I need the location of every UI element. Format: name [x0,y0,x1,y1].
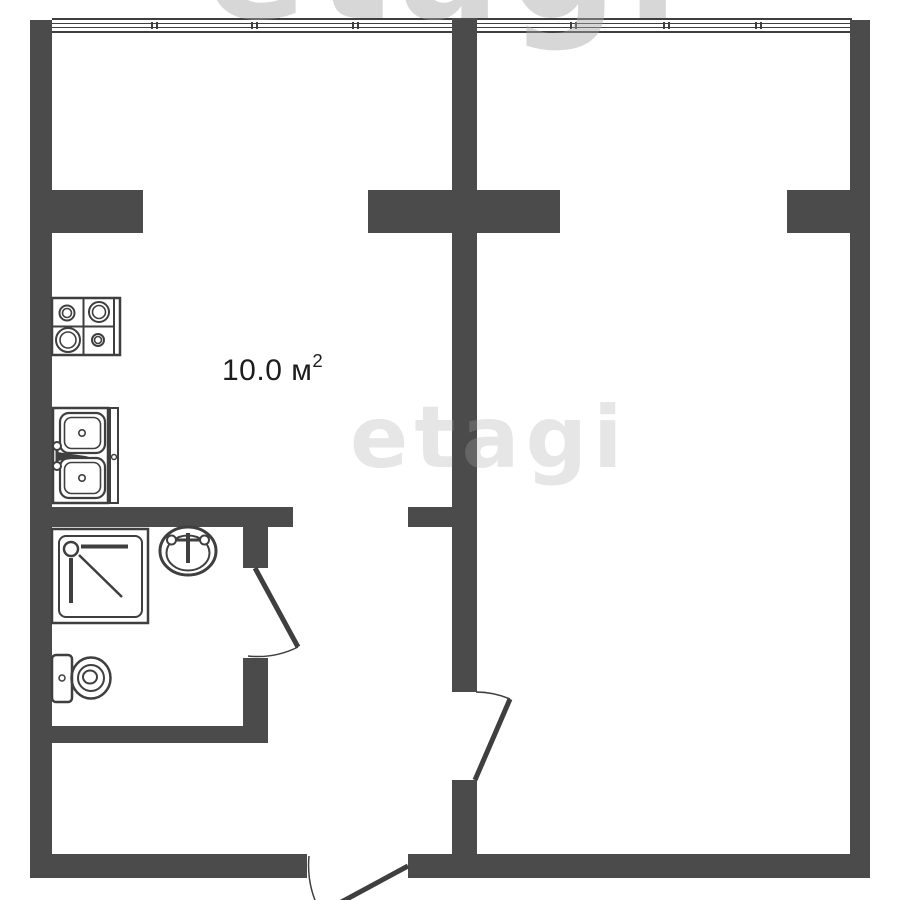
window-mullion [570,22,577,29]
wall-right [850,20,870,878]
window-mullion [251,22,258,29]
kitchen-area-superscript: 2 [312,350,323,371]
partition-stub-right [787,190,852,233]
shower-icon [52,529,148,623]
partition-stub-middle [368,190,560,233]
stove-icon [52,298,120,355]
kitchen-sink-icon [53,408,118,503]
partition-stub-left [52,190,143,233]
entrance-door [309,856,408,900]
bathroom-door [248,568,298,657]
window-mullion [151,22,158,29]
watermark-center: etagi [350,395,629,481]
wall-left [30,20,52,878]
kitchen-area-value: 10.0 м [222,354,312,387]
wall-hall-stub [408,507,452,527]
wall-bottom-left [30,854,307,878]
window-mullion [755,22,762,29]
wall-bottom-right [408,854,870,878]
fixtures-overlay [0,0,900,900]
wall-bath-right-upper [243,527,268,568]
wall-central-lower [452,780,477,878]
toilet-icon [52,655,111,702]
kitchen-area-label: 10.0 м2 [222,352,323,388]
wall-bath-right-lower [243,658,268,728]
room-door [475,692,510,780]
wall-central-upper [452,18,477,692]
wall-kitchen-bath [52,507,293,527]
washbasin-icon [160,527,216,575]
floor-plan: 10.0 м2 etagi etagi [0,0,900,900]
wall-bath-bottom [52,726,268,743]
window-mullion [352,22,359,29]
window-mullion [663,22,670,29]
